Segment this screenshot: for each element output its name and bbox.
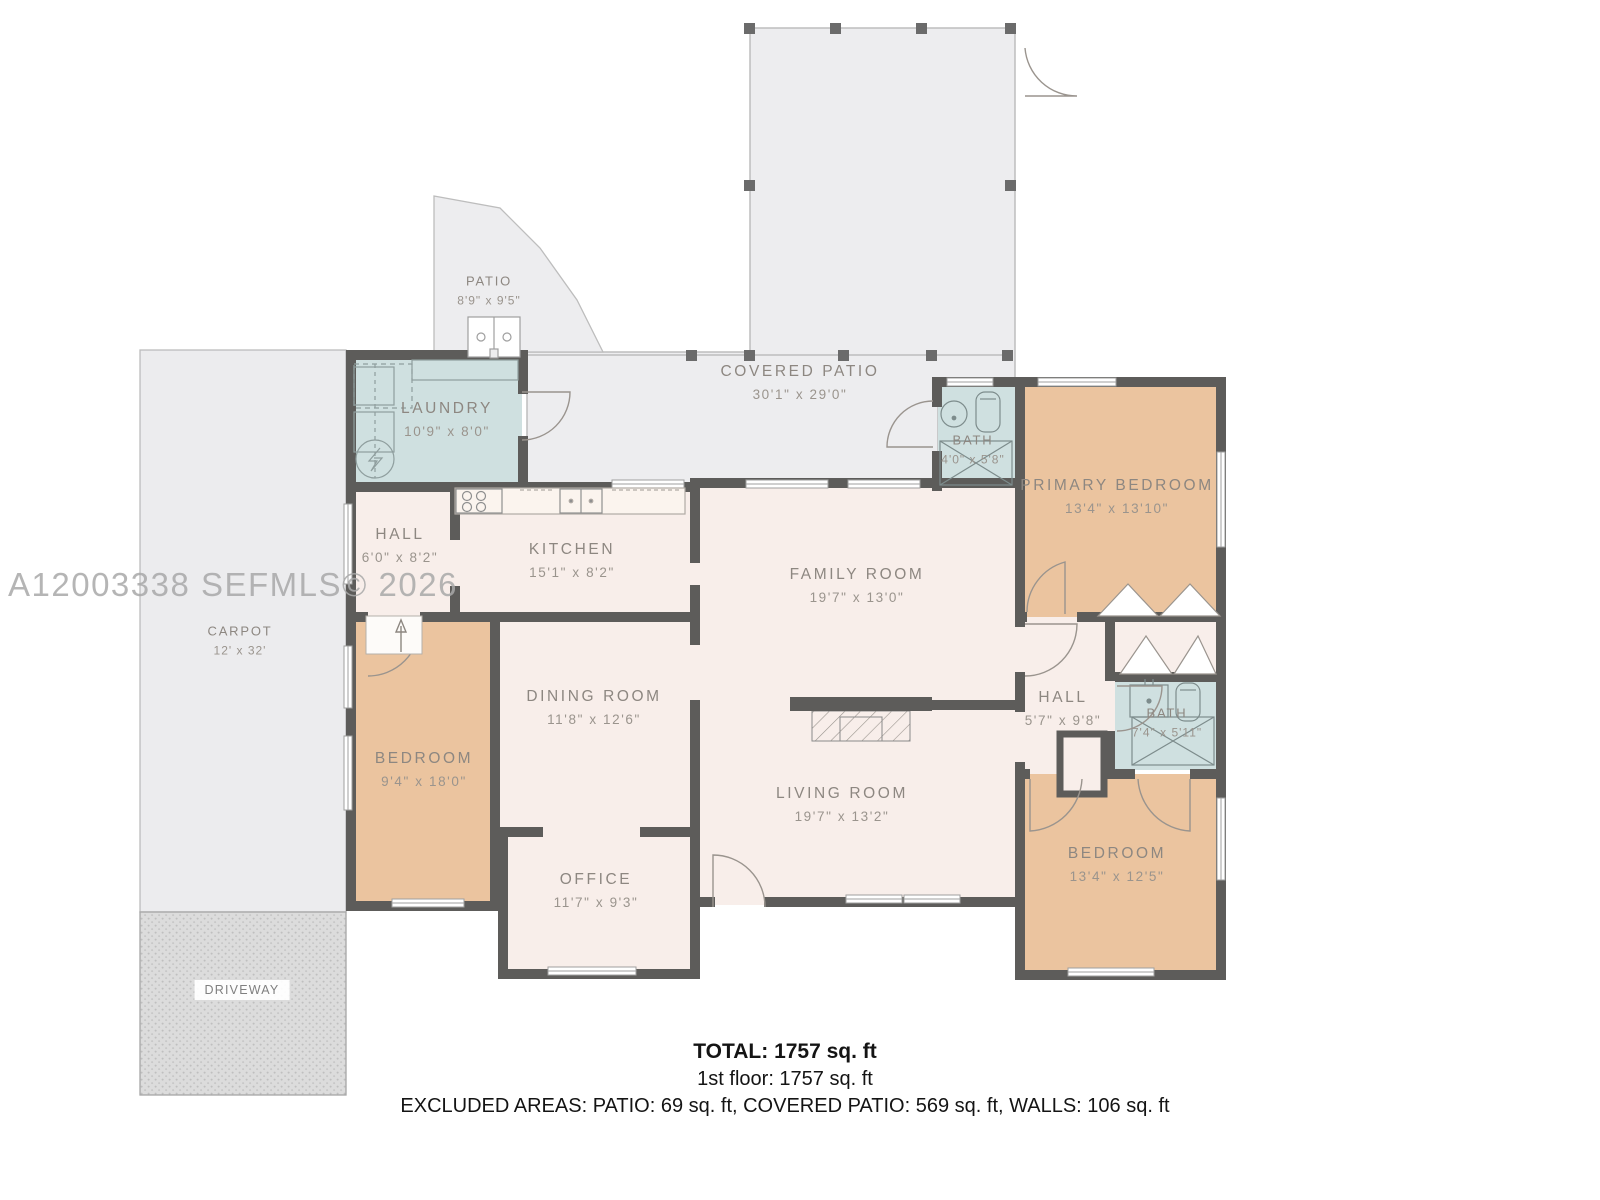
floorplan-page: A12003338 SEFMLS© 2026 PATIO 8'9" x 9'5"… [0, 0, 1600, 1200]
office-floor [503, 832, 690, 972]
carport-area [140, 350, 346, 912]
family-room-floor [690, 483, 1020, 705]
patio-grill [468, 317, 520, 358]
room-label-driveway: DRIVEWAY [195, 980, 290, 1000]
dining-room-floor [496, 617, 690, 832]
kitchen-fixtures [455, 488, 685, 514]
total-area-text: TOTAL: 1757 sq. ft [185, 1038, 1385, 1066]
bath-top-floor [938, 385, 1018, 483]
floor-area-text: 1st floor: 1757 sq. ft [185, 1066, 1385, 1093]
excluded-areas-text: EXCLUDED AREAS: PATIO: 69 sq. ft, COVERE… [185, 1093, 1385, 1120]
entry-arrow [366, 616, 422, 654]
area-summary: TOTAL: 1757 sq. ft 1st floor: 1757 sq. f… [185, 1038, 1385, 1120]
mls-watermark: A12003338 SEFMLS© 2026 [8, 566, 458, 604]
bedroom-left-floor [350, 617, 496, 905]
bedroom-right-floor [1020, 774, 1219, 974]
primary-bedroom-floor [1020, 385, 1219, 617]
